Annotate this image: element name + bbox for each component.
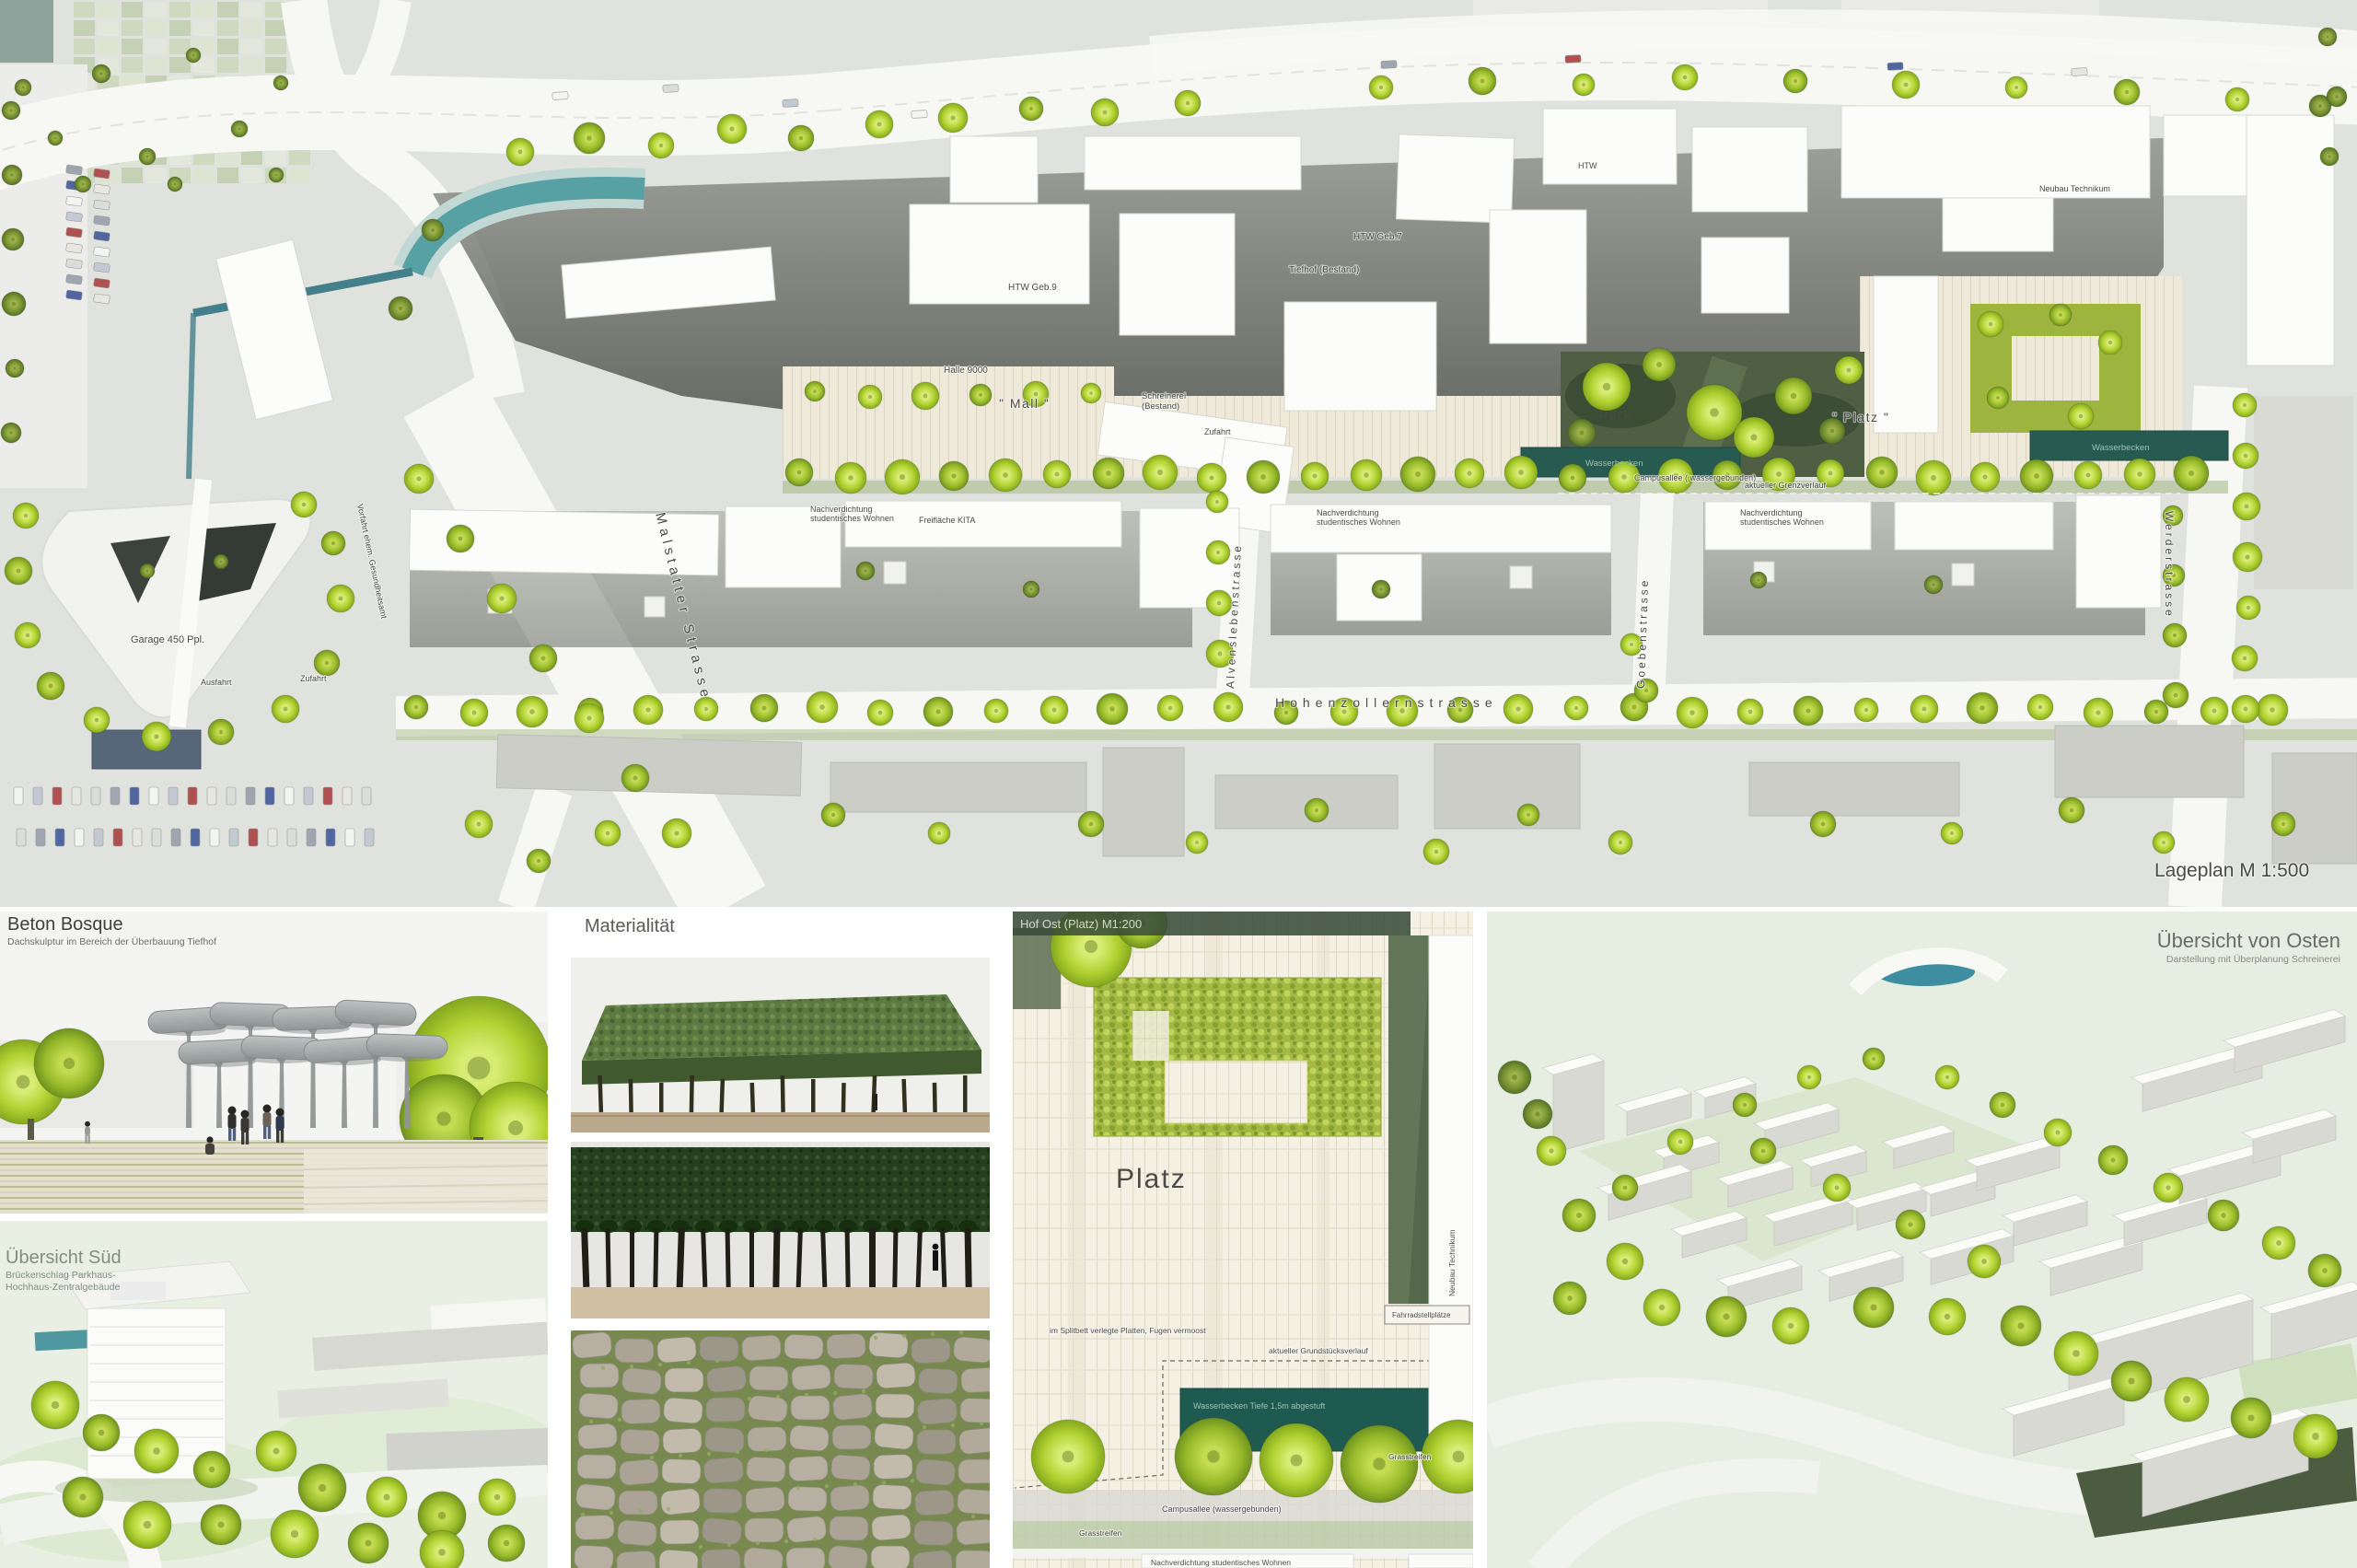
label-nachverdichtung-1a: Nachverdichtung [810,505,873,514]
beton-bosque-render [0,912,548,1214]
hof-campusallee-label: Campusallee (wassergebunden) [1162,1504,1282,1514]
panel-title: Beton Bosque [7,915,123,935]
site-plan-scale: Lageplan M 1:500 [2154,860,2309,881]
label-zufahrt: Zufahrt [300,674,327,683]
label-wasserbecken-1: Wasserbecken [1585,459,1643,469]
street-hohenzollern: Hohenzollernstrasse [1275,695,1498,710]
panel-uebersicht-sued: Übersicht Süd Brückenschlag Parkhaus- Ho… [0,1221,548,1568]
panel-title: Materialität [585,917,675,936]
label-nachverdichtung-1b: studentisches Wohnen [810,514,894,523]
label-zufahrt-2: Zufahrt [1204,427,1231,436]
label-nachverdichtung-2a: Nachverdichtung [1317,508,1379,517]
label-schreinerei-1: Schreinerei [1142,391,1186,401]
label-grenzverlauf: aktueller Grenzverlauf [1745,481,1827,490]
panel-subtitle-1: Brückenschlag Parkhaus- [6,1270,116,1282]
hof-grasstreifen-label-1: Grasstreifen [1388,1452,1432,1461]
hof-fahrrad-label: Fahrradstellplätze [1392,1311,1451,1319]
hof-ost-plan: Platz im Splitbett verlegte Platten, Fug… [1013,912,1473,1568]
panel-hof-ost: Platz im Splitbett verlegte Platten, Fug… [1013,912,1473,1568]
uebersicht-osten-render [1487,912,2357,1568]
label-nachverdichtung-2b: studentisches Wohnen [1317,517,1400,527]
material-photo-bosque [571,1142,990,1318]
panel-subtitle: Darstellung mit Überplanung Schreinerei [2166,954,2340,966]
label-nachverdichtung-3b: studentisches Wohnen [1740,517,1824,527]
label-neubau-technikum: Neubau Technikum [2039,184,2110,193]
panel-uebersicht-osten: Übersicht von Osten Darstellung mit Über… [1487,912,2357,1568]
label-htw-geb9: HTW Geb.9 [1008,283,1057,293]
panel-materialitaet: Materialität [571,912,990,1568]
label-tiefhof: Tiefhof (Bestand) [1289,265,1359,275]
label-kita: Freifläche KITA [919,516,975,525]
panel-title: Übersicht Süd [6,1249,122,1268]
hof-wasserbecken-label: Wasserbecken Tiefe 1,5m abgestuft [1193,1401,1326,1411]
label-platz: " Platz " [1832,410,1889,424]
panel-title: Übersicht von Osten [2157,930,2340,951]
hedge-block [1094,978,1381,1136]
panel-subtitle-2: Hochhaus-Zentralgebäude [6,1282,120,1294]
label-campusallee: Campusallee ( wassergebunden) [1634,473,1756,482]
presentation-board: Malstatter Strasse Hohenzollernstrasse A… [0,0,2357,1568]
label-mall: " Mall " [999,396,1050,411]
hof-platz-label: Platz [1116,1164,1187,1194]
label-htw-geb7: HTW Geb.7 [1353,232,1402,242]
site-plan: Malstatter Strasse Hohenzollernstrasse A… [0,0,2357,907]
label-ausfahrt: Ausfahrt [201,678,232,687]
label-garage: Garage 450 Ppl. [131,634,204,645]
label-park: " Park " [1588,408,1643,423]
panel-subtitle: Dachskulptur im Bereich der Überbauung T… [7,936,216,948]
hof-grundstueck-label: aktueller Grundstücksverlauf [1269,1346,1368,1355]
panel-beton-bosque: Beton Bosque Dachskulptur im Bereich der… [0,912,548,1214]
label-htw: HTW [1578,161,1597,170]
material-photo-moss-cobbles [571,1330,990,1568]
material-photo-hedge-canopy [571,958,990,1132]
hof-ost-header: Hof Ost (Platz) M1:200 [1013,912,1411,935]
hof-ost-title: Hof Ost (Platz) M1:200 [1020,917,1142,931]
hof-splitbett-label: im Splitbett verlegte Platten, Fugen ver… [1050,1326,1206,1335]
hof-technikum-label: Neubau Technikum [1447,1229,1457,1296]
label-schreinerei-2: (Bestand) [1142,401,1179,412]
hof-nachverdichtung-label: Nachverdichtung studentisches Wohnen [1151,1558,1291,1567]
label-nachverdichtung-3a: Nachverdichtung [1740,508,1803,517]
hof-grasstreifen-label-2: Grasstreifen [1079,1528,1122,1538]
street-werder: Werderstrasse [2163,511,2176,619]
label-wasserbecken-2: Wasserbecken [2092,443,2149,453]
label-halle9000: Halle 9000 [944,366,988,376]
